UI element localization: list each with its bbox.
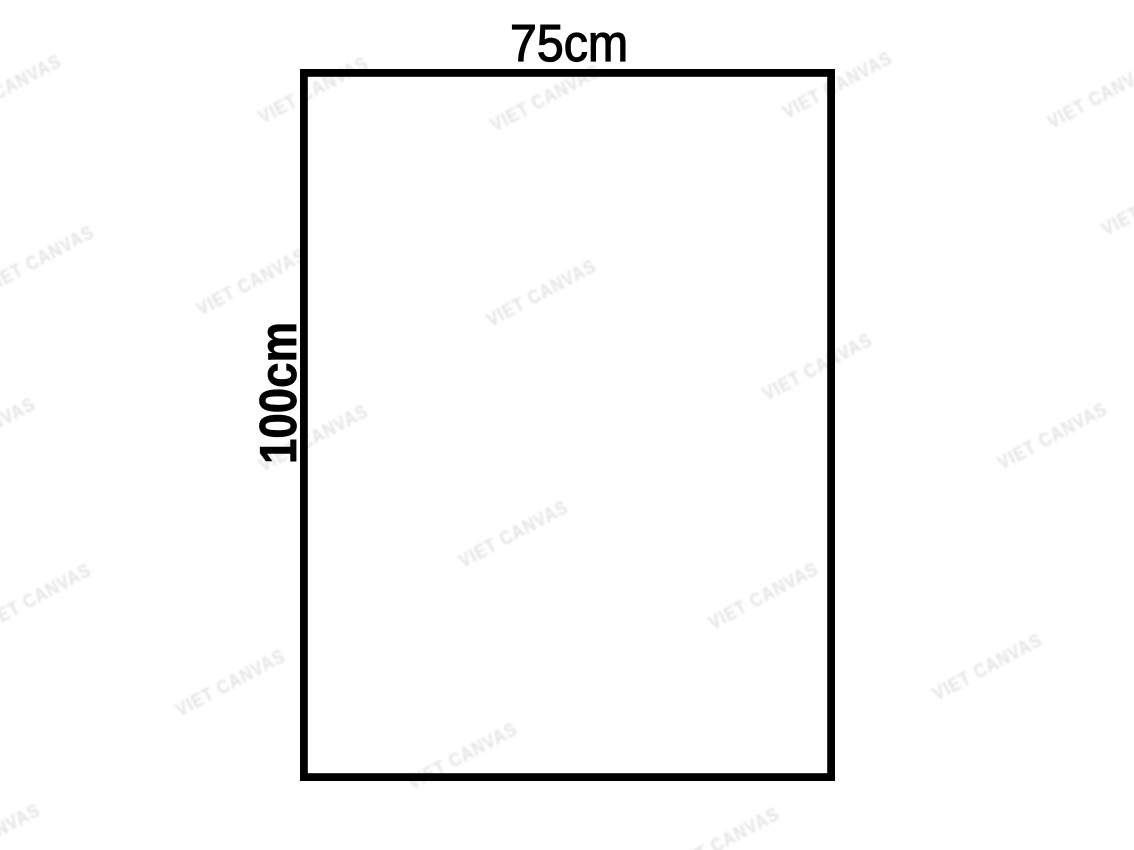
svg-text:100cm: 100cm bbox=[250, 322, 308, 464]
svg-text:75cm: 75cm bbox=[510, 15, 628, 73]
